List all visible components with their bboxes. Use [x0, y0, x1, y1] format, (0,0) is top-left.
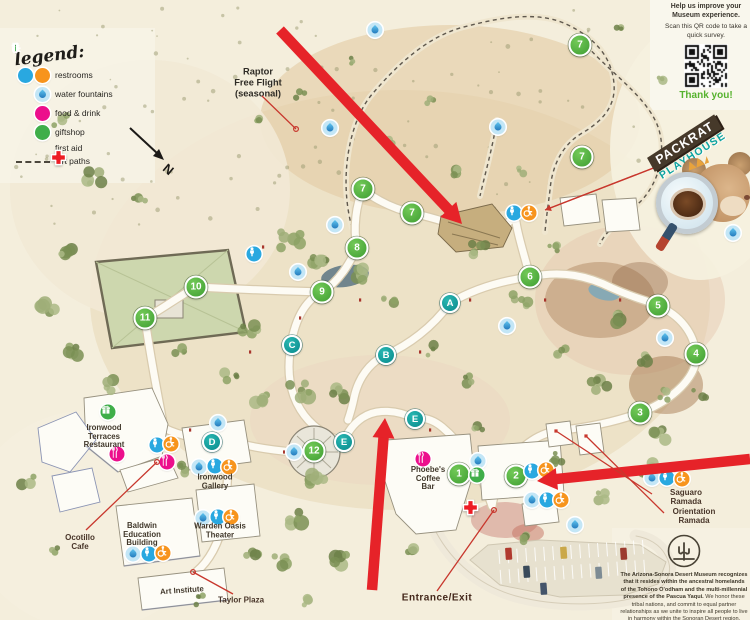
- packrat-playhouse-logo: PACKRAT PLAYHOUSE: [646, 98, 750, 240]
- map-label: Phoebe's Coffee Bar: [411, 466, 445, 492]
- food-drink-icon: [10, 106, 50, 121]
- legend-item-first-aid: first aid: [10, 144, 152, 153]
- legend-label: water fountains: [55, 90, 115, 99]
- accessible-restroom-icon: [35, 68, 50, 83]
- map-label: Raptor Free Flight (seasonal): [234, 67, 282, 100]
- map-label: Art Institute: [160, 585, 204, 597]
- map-label: Entrance/Exit: [402, 593, 472, 604]
- legend-item-dirt-paths: dirt paths: [10, 157, 152, 166]
- map-label: Warden Oasis Theater: [194, 522, 246, 539]
- map-label: Ironwood Gallery: [197, 473, 232, 490]
- survey-subtext: Scan this QR code to take a quick survey…: [664, 23, 748, 40]
- legend-panel: legend: restrooms water fountains food &…: [10, 42, 152, 171]
- giftshop-icon: [35, 125, 50, 140]
- legend-item-giftshop: giftshop: [10, 125, 152, 140]
- legend-label: food & drink: [55, 109, 115, 118]
- map-label: Orientation Ramada: [666, 508, 722, 526]
- dirt-path-sample: [16, 161, 50, 163]
- map-label: Taylor Plaza: [218, 597, 264, 606]
- map-label: Ironwood Terraces Restaurant: [84, 424, 125, 450]
- desert-museum-logo: [666, 533, 702, 569]
- legend-label: giftshop: [55, 128, 115, 137]
- restroom-icon: [18, 68, 33, 83]
- qr-code: [684, 44, 728, 88]
- magnifying-glass-icon: [656, 172, 718, 234]
- map-label: Saguaro Ramada: [654, 489, 718, 507]
- legend-label: restrooms: [55, 71, 115, 80]
- map-label: Ocotillo Cafe: [65, 534, 95, 552]
- giftshop-icon: [10, 125, 50, 140]
- legend-item-water-fountains: water fountains: [10, 87, 152, 102]
- survey-panel: Help us improve your Museum experience. …: [664, 3, 748, 101]
- food-drink-icon: [35, 106, 50, 121]
- legend-item-food-drink: food & drink: [10, 106, 152, 121]
- dirt-path-icon: [10, 161, 50, 163]
- survey-heading: Help us improve your Museum experience.: [664, 3, 748, 21]
- desert-museum-map: 123456777789101112ABCDEE Raptor Free Fli…: [0, 0, 750, 620]
- legend-item-restrooms: restrooms: [10, 68, 152, 83]
- acknowledgment-text: The Arizona-Sonora Desert Museum recogni…: [620, 572, 748, 620]
- water-fountain-icon: [35, 87, 50, 102]
- map-label: Baldwin Education Building: [123, 522, 161, 548]
- water-fountain-icon: [10, 87, 50, 102]
- land-acknowledgment: The Arizona-Sonora Desert Museum recogni…: [620, 533, 748, 620]
- packrat-illustration: [670, 156, 750, 240]
